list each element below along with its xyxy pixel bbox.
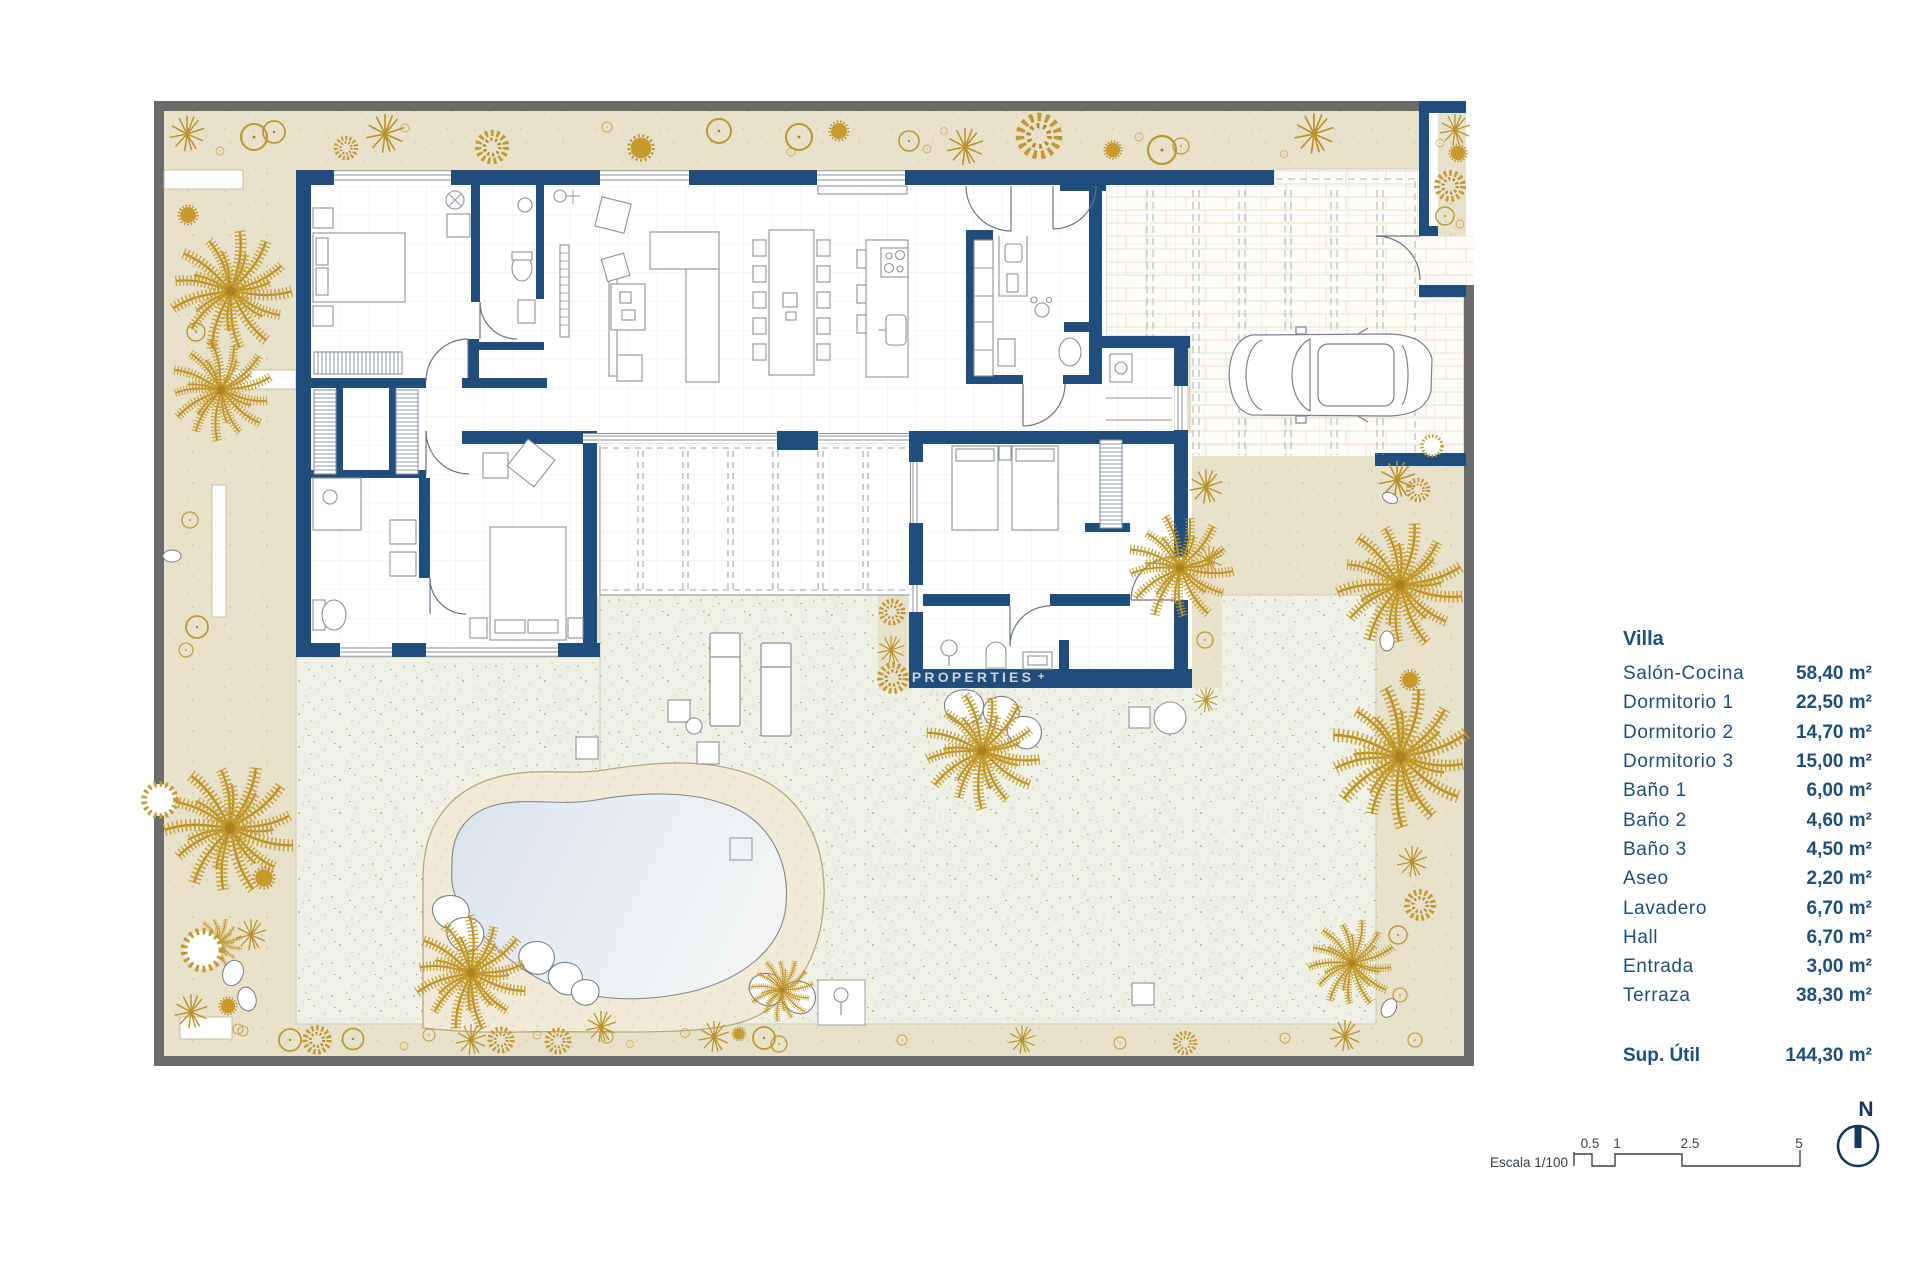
- svg-text:1: 1: [1613, 1136, 1621, 1151]
- svg-text:Dormitorio 1: Dormitorio 1: [1623, 692, 1734, 713]
- svg-text:Dormitorio 3: Dormitorio 3: [1623, 751, 1734, 772]
- svg-text:+: +: [1038, 671, 1044, 683]
- svg-text:Entrada: Entrada: [1623, 956, 1694, 977]
- svg-text:5: 5: [1795, 1136, 1803, 1151]
- svg-text:Aseo: Aseo: [1623, 868, 1669, 889]
- svg-text:Baño 1: Baño 1: [1623, 780, 1687, 801]
- svg-text:Lavadero: Lavadero: [1623, 898, 1707, 919]
- svg-text:6,70 m²: 6,70 m²: [1807, 927, 1872, 948]
- svg-text:0.5: 0.5: [1581, 1136, 1600, 1151]
- svg-text:14,70 m²: 14,70 m²: [1796, 722, 1872, 743]
- svg-text:2,20 m²: 2,20 m²: [1807, 868, 1872, 889]
- svg-text:Baño 3: Baño 3: [1623, 839, 1687, 860]
- svg-text:4,50 m²: 4,50 m²: [1807, 839, 1872, 860]
- svg-text:N: N: [1858, 1098, 1873, 1121]
- svg-text:6,00 m²: 6,00 m²: [1807, 780, 1872, 801]
- svg-text:Terraza: Terraza: [1623, 985, 1691, 1006]
- svg-text:Baño 2: Baño 2: [1623, 810, 1687, 831]
- svg-text:144,30 m²: 144,30 m²: [1785, 1045, 1872, 1066]
- svg-text:58,40 m²: 58,40 m²: [1796, 663, 1872, 684]
- svg-text:REAL ESTATE: REAL ESTATE: [929, 692, 999, 698]
- svg-text:PROPERTIES: PROPERTIES: [912, 669, 1034, 685]
- svg-text:2.5: 2.5: [1681, 1136, 1700, 1151]
- svg-text:22,50 m²: 22,50 m²: [1796, 692, 1872, 713]
- svg-text:15,00 m²: 15,00 m²: [1796, 751, 1872, 772]
- svg-text:Salón-Cocina: Salón-Cocina: [1623, 663, 1744, 684]
- svg-text:3,00 m²: 3,00 m²: [1807, 956, 1872, 977]
- svg-text:38,30 m²: 38,30 m²: [1796, 985, 1872, 1006]
- svg-text:4,60 m²: 4,60 m²: [1807, 810, 1872, 831]
- svg-text:Dormitorio 2: Dormitorio 2: [1623, 722, 1734, 743]
- svg-text:6,70 m²: 6,70 m²: [1807, 898, 1872, 919]
- svg-text:Escala 1/100: Escala 1/100: [1490, 1155, 1568, 1170]
- svg-text:Hall: Hall: [1623, 927, 1658, 948]
- svg-text:Villa: Villa: [1623, 628, 1665, 650]
- svg-text:Sup. Útil: Sup. Útil: [1623, 1044, 1700, 1066]
